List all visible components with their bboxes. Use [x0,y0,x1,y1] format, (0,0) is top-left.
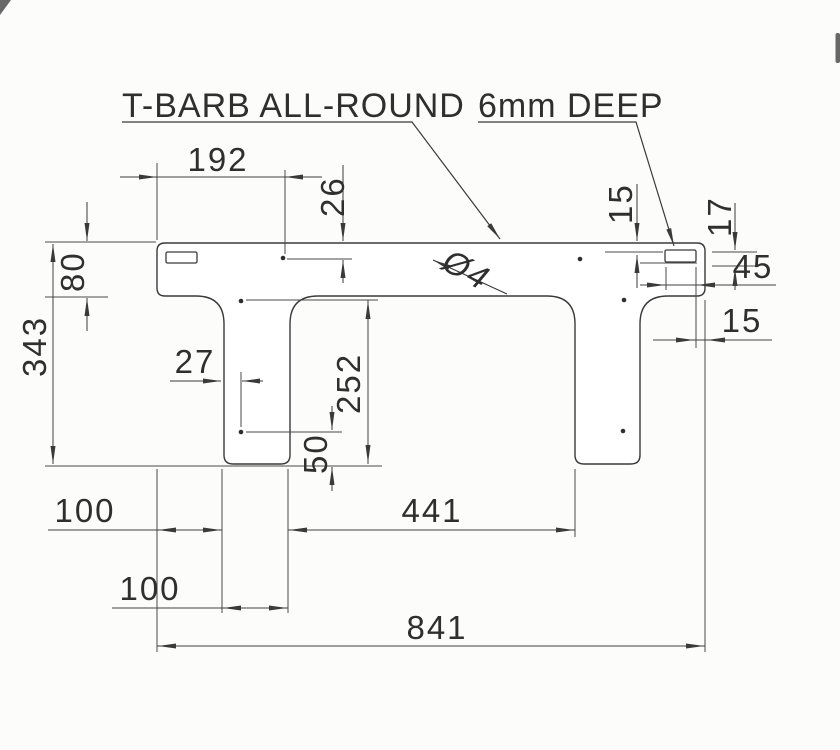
dim-label-192: 192 [187,141,248,178]
part [157,243,705,464]
hole-top-right [578,257,583,262]
hole-right-leg-lower [621,429,626,434]
scan-artifact-corner [0,0,11,15]
dim-label-100-offset: 100 [54,492,115,529]
dim-label-15-right: 15 [722,302,763,339]
dim-label-343: 343 [16,316,53,377]
t-barb-callout: T-BARB ALL-ROUND [122,87,465,125]
hole-right-leg-upper [622,298,627,303]
deep-leader [478,122,674,246]
dim-label-50: 50 [297,433,334,474]
hole-top-left [281,256,286,261]
dim-label-252: 252 [330,353,367,414]
dim-label-841: 841 [406,609,467,646]
dim-label-45: 45 [733,248,774,285]
deep-callout: 6mm DEEP [478,87,664,125]
dim-label-100-leg: 100 [119,570,180,607]
scan-artifact-edge [836,33,840,63]
technical-drawing-sheet: 192 26 80 343 27 252 50 100 [0,0,840,750]
hole-left-leg-upper [239,299,244,304]
dimension-drawing: 192 26 80 343 27 252 50 100 [0,0,840,750]
dim-label-441: 441 [401,492,462,529]
dimensions: 192 26 80 343 27 252 50 100 [16,141,776,646]
dim-label-26: 26 [314,176,351,217]
hole-left-leg-lower [239,430,244,435]
dim-label-27: 27 [175,343,216,380]
dim-label-17: 17 [701,196,738,237]
dim-label-15-top: 15 [602,183,639,224]
t-barb-leader [122,122,500,239]
dim-label-80: 80 [54,251,91,292]
